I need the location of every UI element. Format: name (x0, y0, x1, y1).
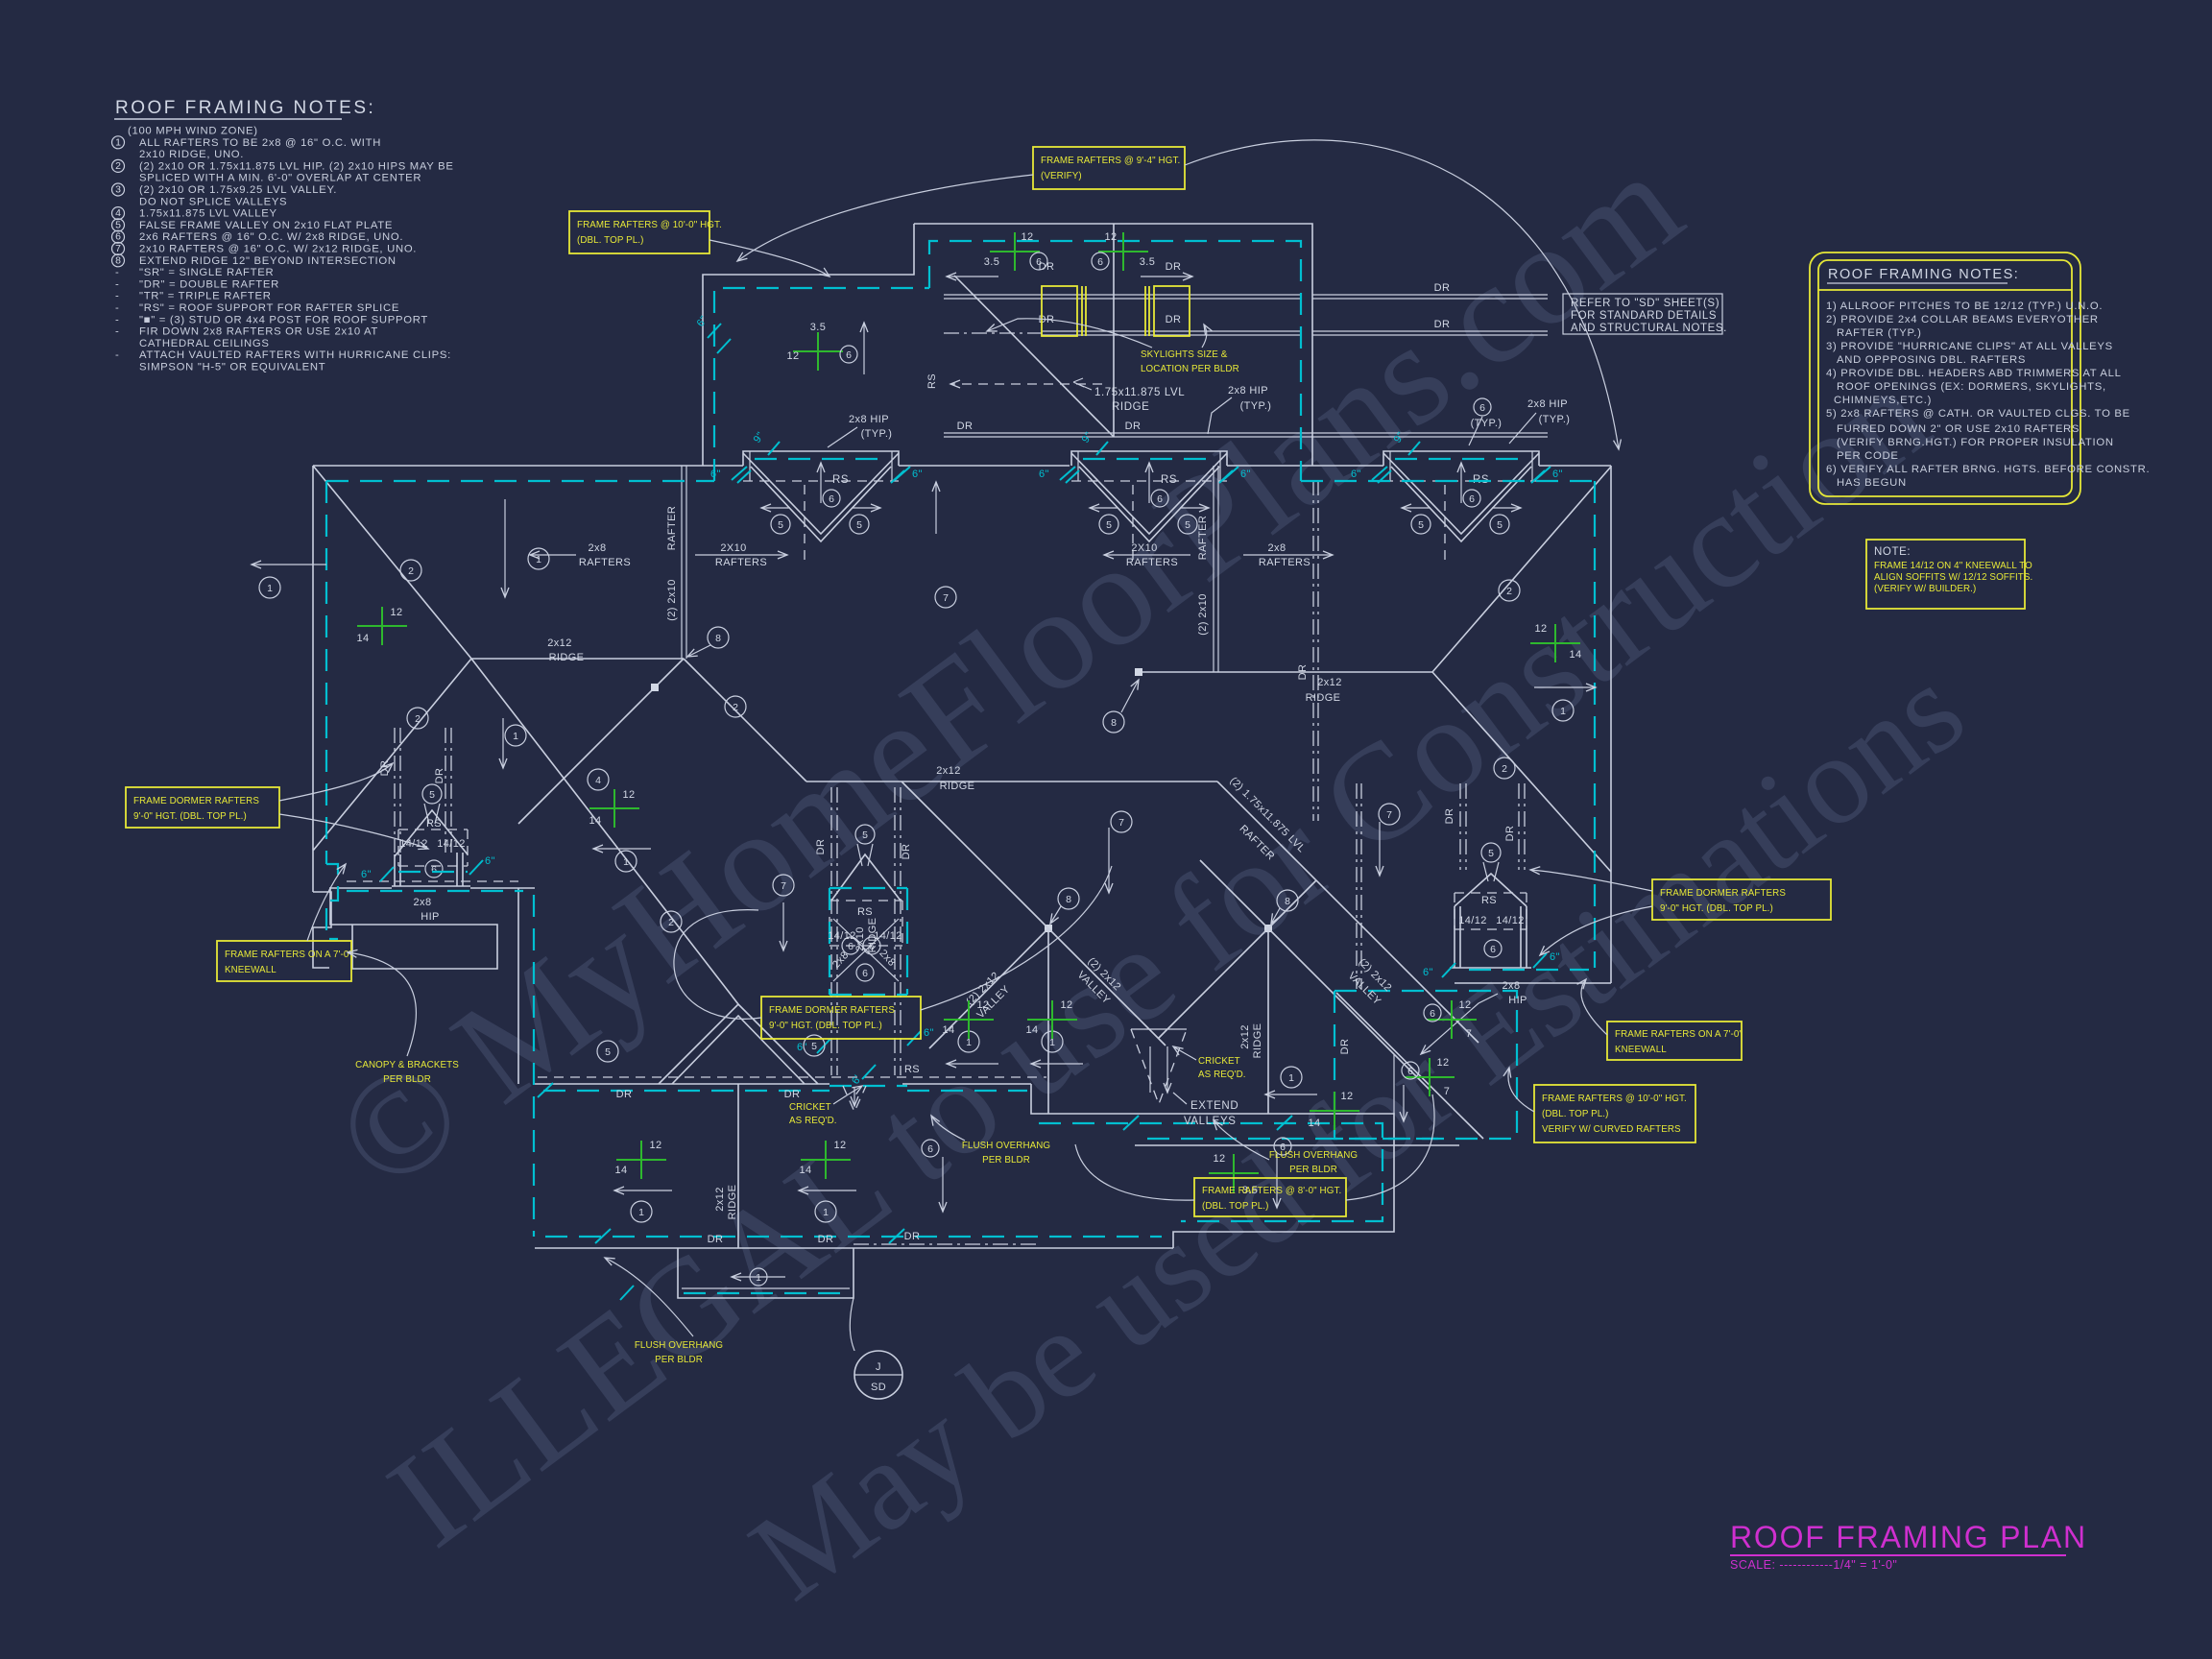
svg-text:(DBL. TOP PL.): (DBL. TOP PL.) (1202, 1201, 1268, 1212)
svg-text:REFER TO "SD" SHEET(S): REFER TO "SD" SHEET(S) (1571, 298, 1719, 309)
svg-text:7: 7 (781, 880, 786, 892)
svg-text:5) 2x8 RAFTERS @ CATH. OR VAUL: 5) 2x8 RAFTERS @ CATH. OR VAULTED CLGS. … (1826, 408, 2130, 420)
svg-text:RS: RS (1161, 474, 1177, 486)
svg-text:DR: DR (904, 1231, 921, 1242)
svg-text:8: 8 (715, 633, 721, 644)
svg-text:-: - (115, 314, 119, 325)
svg-text:"DR" = DOUBLE RAFTER: "DR" = DOUBLE RAFTER (139, 278, 279, 290)
svg-text:1: 1 (1560, 706, 1566, 717)
svg-text:(DBL. TOP PL.): (DBL. TOP PL.) (1542, 1109, 1608, 1119)
svg-text:FRAME RAFTERS @ 9'-4" HGT.: FRAME RAFTERS @ 9'-4" HGT. (1041, 156, 1180, 166)
svg-text:DR: DR (901, 844, 912, 860)
svg-text:AS REQ'D.: AS REQ'D. (1198, 1070, 1246, 1080)
svg-text:-: - (115, 302, 119, 314)
svg-text:2x10 RAFTERS @ 16" O.C. W/ 2x1: 2x10 RAFTERS @ 16" O.C. W/ 2x12 RIDGE, U… (139, 244, 417, 255)
svg-text:FALSE FRAME VALLEY ON 2x10 FLA: FALSE FRAME VALLEY ON 2x10 FLAT PLATE (139, 220, 393, 231)
svg-text:RIDGE: RIDGE (727, 1185, 738, 1220)
svg-text:5: 5 (1497, 519, 1503, 531)
svg-text:6": 6" (485, 855, 495, 867)
svg-text:3.5: 3.5 (1140, 256, 1156, 268)
svg-text:6: 6 (1469, 493, 1475, 505)
svg-text:2x8 HIP: 2x8 HIP (1527, 398, 1568, 410)
svg-text:SIMPSON "H-5" OR EQUIVALENT: SIMPSON "H-5" OR EQUIVALENT (139, 362, 325, 373)
svg-text:2) PROVIDE 2x4 COLLAR BEAMS EV: 2) PROVIDE 2x4 COLLAR BEAMS EVERYOTHER (1826, 314, 2099, 325)
svg-text:14: 14 (1025, 1024, 1038, 1036)
svg-text:ALL RAFTERS TO BE 2x8 @ 16" O.: ALL RAFTERS TO BE 2x8 @ 16" O.C. WITH (139, 137, 381, 149)
svg-text:2x6 RAFTERS @ 16" O.C. W/ 2x8: 2x6 RAFTERS @ 16" O.C. W/ 2x8 RIDGE, UNO… (139, 231, 403, 243)
svg-text:FRAME DORMER RAFTERS: FRAME DORMER RAFTERS (133, 796, 259, 806)
svg-text:2: 2 (408, 565, 414, 577)
svg-text:14/12: 14/12 (1496, 915, 1525, 926)
svg-text:2x8: 2x8 (1268, 542, 1286, 554)
svg-text:12: 12 (1436, 1057, 1449, 1069)
svg-text:FRAME RAFTERS ON A 7'-0": FRAME RAFTERS ON A 7'-0" (225, 950, 352, 960)
svg-text:DR: DR (1434, 319, 1451, 330)
svg-text:(2) 2x10 OR 1.75x9.25 LVL VALL: (2) 2x10 OR 1.75x9.25 LVL VALLEY. (139, 184, 337, 196)
svg-text:6": 6" (912, 469, 923, 480)
svg-text:6": 6" (695, 314, 710, 329)
svg-text:3: 3 (115, 184, 121, 196)
svg-text:12: 12 (1060, 999, 1072, 1011)
svg-text:"TR" = TRIPLE RAFTER: "TR" = TRIPLE RAFTER (139, 291, 272, 302)
svg-text:AS REQ'D.: AS REQ'D. (789, 1116, 837, 1126)
svg-text:DR: DR (1339, 1039, 1351, 1055)
svg-text:NOTE:: NOTE: (1874, 546, 1911, 558)
svg-text:1: 1 (536, 554, 541, 565)
svg-text:2x12: 2x12 (936, 765, 960, 777)
svg-text:6: 6 (862, 968, 868, 979)
svg-text:SD: SD (871, 1382, 886, 1393)
svg-text:DR: DR (1297, 664, 1309, 681)
svg-text:SPLICED WITH A MIN. 6'-0" OVER: SPLICED WITH A MIN. 6'-0" OVERLAP AT CEN… (139, 173, 421, 184)
svg-text:6": 6" (924, 1027, 934, 1039)
svg-text:6: 6 (829, 493, 834, 505)
svg-text:2x12: 2x12 (1239, 1024, 1251, 1048)
svg-text:(2) 2x10: (2) 2x10 (666, 579, 678, 621)
svg-text:14: 14 (942, 1024, 954, 1036)
svg-text:SCALE: ------------1/4" = 1'-0: SCALE: ------------1/4" = 1'-0" (1730, 1558, 1897, 1572)
svg-text:6: 6 (848, 941, 854, 952)
svg-text:HIP: HIP (421, 911, 440, 923)
svg-text:FRAME RAFTERS ON A 7'-0": FRAME RAFTERS ON A 7'-0" (1615, 1029, 1743, 1040)
svg-text:DR: DR (1504, 826, 1516, 842)
svg-text:9'-0" HGT. (DBL. TOP PL.): 9'-0" HGT. (DBL. TOP PL.) (133, 811, 247, 822)
svg-text:6": 6" (710, 469, 721, 480)
svg-text:2: 2 (1502, 763, 1507, 775)
svg-text:5: 5 (605, 1046, 611, 1058)
svg-text:-: - (115, 267, 119, 278)
svg-text:6: 6 (1490, 944, 1496, 955)
svg-text:14/12: 14/12 (437, 838, 466, 850)
svg-text:6": 6" (1351, 469, 1361, 480)
svg-text:DR: DR (434, 768, 445, 784)
svg-text:7: 7 (115, 243, 121, 254)
svg-text:6: 6 (846, 349, 852, 361)
svg-text:8: 8 (1111, 717, 1117, 729)
svg-text:2x10: 2x10 (854, 926, 866, 950)
svg-text:6: 6 (1097, 256, 1103, 268)
svg-text:1: 1 (823, 1207, 829, 1218)
svg-text:2x8: 2x8 (1503, 980, 1521, 992)
svg-text:6": 6" (361, 869, 372, 880)
svg-text:HAS BEGUN: HAS BEGUN (1837, 477, 1907, 489)
svg-text:(TYP.): (TYP.) (861, 428, 893, 440)
svg-text:3.5: 3.5 (810, 322, 827, 333)
svg-text:9": 9" (1080, 430, 1095, 445)
svg-text:-: - (115, 278, 119, 290)
svg-text:2X10: 2X10 (1131, 542, 1157, 554)
svg-text:12: 12 (833, 1140, 846, 1151)
svg-text:RIDGE: RIDGE (549, 652, 585, 663)
svg-text:1: 1 (513, 731, 518, 742)
svg-text:3) PROVIDE "HURRICANE CLIPS" A: 3) PROVIDE "HURRICANE CLIPS" AT ALL VALL… (1826, 341, 2113, 352)
svg-text:6) VERIFY ALL RAFTER BRNG. HGT: 6) VERIFY ALL RAFTER BRNG. HGTS. BEFORE … (1826, 464, 2150, 475)
svg-text:FRAME RAFTERS @ 10'-0" HGT.: FRAME RAFTERS @ 10'-0" HGT. (577, 220, 722, 230)
svg-text:FRAME 14/12 ON 4" KNEEWALL TO: FRAME 14/12 ON 4" KNEEWALL TO (1874, 561, 2032, 571)
svg-text:AND OPPPOSING DBL. RAFTERS: AND OPPPOSING DBL. RAFTERS (1837, 354, 2026, 366)
svg-text:14/12: 14/12 (1458, 915, 1487, 926)
svg-text:ROOF FRAMING PLAN: ROOF FRAMING PLAN (1730, 1520, 2087, 1554)
svg-text:-: - (115, 291, 119, 302)
svg-text:4) PROVIDE DBL. HEADERS ABD TR: 4) PROVIDE DBL. HEADERS ABD TRIMMERS AT … (1826, 368, 2122, 379)
svg-text:7: 7 (1466, 1028, 1473, 1040)
svg-text:DR: DR (708, 1234, 724, 1245)
svg-text:5: 5 (811, 1041, 817, 1052)
svg-text:14: 14 (589, 815, 601, 827)
svg-text:KNEEWALL: KNEEWALL (225, 965, 276, 975)
svg-text:RAFTERS: RAFTERS (715, 557, 767, 568)
svg-text:(VERIFY W/ BUILDER.): (VERIFY W/ BUILDER.) (1874, 584, 1976, 594)
svg-text:RAFTER (TYP.): RAFTER (TYP.) (1837, 327, 1922, 339)
svg-text:2: 2 (415, 713, 421, 725)
svg-text:FLUSH OVERHANG: FLUSH OVERHANG (962, 1141, 1050, 1151)
svg-text:RAFTER: RAFTER (666, 506, 678, 550)
svg-text:12: 12 (622, 789, 635, 801)
svg-text:2x8: 2x8 (589, 542, 607, 554)
svg-text:1: 1 (638, 1207, 644, 1218)
svg-text:7: 7 (943, 592, 949, 604)
svg-text:-: - (115, 326, 119, 338)
svg-text:1: 1 (267, 583, 273, 594)
svg-text:RIDGE: RIDGE (1112, 401, 1149, 413)
svg-text:5: 5 (429, 789, 435, 801)
svg-text:J: J (876, 1361, 881, 1373)
svg-text:RS: RS (926, 373, 938, 389)
svg-text:CRICKET: CRICKET (1198, 1056, 1240, 1067)
svg-text:RIDGE: RIDGE (1252, 1023, 1263, 1059)
svg-text:6": 6" (1552, 469, 1563, 480)
svg-text:RS: RS (857, 906, 873, 918)
svg-text:FRAME RAFTERS @ 8'-0" HGT.: FRAME RAFTERS @ 8'-0" HGT. (1202, 1186, 1341, 1196)
svg-text:5: 5 (1488, 848, 1494, 859)
svg-text:14/12: 14/12 (828, 930, 856, 942)
svg-text:12: 12 (786, 350, 799, 362)
svg-text:VALLEYS: VALLEYS (1184, 1116, 1237, 1127)
svg-text:"■" = (3) STUD OR 4x4 POST: "■" = (3) STUD OR 4x4 POST FOR ROOF SUPP… (139, 314, 428, 325)
svg-text:RS: RS (832, 474, 849, 486)
svg-text:EXTEND RIDGE 12" BEYOND INTERS: EXTEND RIDGE 12" BEYOND INTERSECTION (139, 255, 397, 267)
svg-text:6: 6 (1407, 1066, 1413, 1077)
svg-text:12: 12 (1213, 1153, 1225, 1165)
svg-text:1.75x11.875 LVL: 1.75x11.875 LVL (1094, 387, 1185, 398)
svg-text:12: 12 (1458, 999, 1471, 1011)
svg-text:5: 5 (856, 519, 862, 531)
svg-text:FURRED DOWN 2" OR USE 2x10 RAF: FURRED DOWN 2" OR USE 2x10 RAFTERS (1837, 423, 2080, 435)
svg-text:ALIGN SOFFITS W/ 12/12 SOFFITS: ALIGN SOFFITS W/ 12/12 SOFFITS. (1874, 572, 2032, 583)
svg-text:PER CODE: PER CODE (1837, 450, 1899, 462)
svg-text:DR: DR (616, 1089, 633, 1100)
svg-text:2x12: 2x12 (547, 637, 571, 649)
svg-text:6": 6" (1240, 469, 1251, 480)
svg-text:RAFTERS: RAFTERS (579, 557, 631, 568)
svg-text:2: 2 (1506, 586, 1512, 597)
svg-text:12: 12 (390, 607, 402, 618)
svg-text:5: 5 (778, 519, 783, 531)
svg-text:6: 6 (1157, 493, 1163, 505)
svg-text:VERIFY W/ CURVED RAFTERS: VERIFY W/ CURVED RAFTERS (1542, 1124, 1681, 1135)
svg-text:SKYLIGHTS SIZE &: SKYLIGHTS SIZE & (1141, 349, 1228, 360)
svg-text:ROOF FRAMING NOTES:: ROOF FRAMING NOTES: (1828, 267, 2019, 282)
svg-text:LOCATION PER BLDR: LOCATION PER BLDR (1141, 364, 1239, 374)
svg-text:RAFTERS: RAFTERS (1259, 557, 1310, 568)
svg-text:12: 12 (1104, 231, 1117, 243)
svg-text:DR: DR (1166, 314, 1182, 325)
svg-text:CATHEDRAL CEILINGS: CATHEDRAL CEILINGS (139, 338, 270, 349)
svg-text:6: 6 (1430, 1008, 1435, 1020)
svg-text:14: 14 (1308, 1118, 1320, 1129)
svg-text:ATTACH VAULTED RAFTERS WITH HU: ATTACH VAULTED RAFTERS WITH HURRICANE CL… (139, 349, 451, 361)
svg-text:"RS" = ROOF SUPPORT FOR RAFT: "RS" = ROOF SUPPORT FOR RAFTER SPLICE (139, 302, 399, 314)
svg-text:1: 1 (623, 856, 629, 868)
svg-text:2: 2 (668, 917, 674, 928)
svg-text:9'-0" HGT. (DBL. TOP PL.): 9'-0" HGT. (DBL. TOP PL.) (769, 1021, 882, 1031)
svg-text:DR: DR (1125, 421, 1142, 432)
svg-text:PER BLDR: PER BLDR (982, 1155, 1030, 1166)
svg-text:DR: DR (815, 839, 827, 855)
svg-text:5: 5 (115, 219, 121, 230)
svg-text:DR: DR (1444, 808, 1455, 825)
svg-text:EXTEND: EXTEND (1190, 1100, 1238, 1112)
svg-text:DR: DR (1434, 282, 1451, 294)
svg-text:(VERIFY): (VERIFY) (1041, 171, 1082, 181)
svg-text:6: 6 (1479, 402, 1485, 414)
svg-text:(DBL. TOP PL.): (DBL. TOP PL.) (577, 235, 643, 246)
svg-text:HIP: HIP (1508, 995, 1527, 1006)
svg-text:FLUSH OVERHANG: FLUSH OVERHANG (635, 1340, 723, 1351)
svg-text:8: 8 (115, 254, 121, 266)
svg-text:DR: DR (818, 1234, 834, 1245)
svg-text:CANOPY & BRACKETS: CANOPY & BRACKETS (355, 1060, 459, 1070)
svg-text:"SR" = SINGLE RAFTER: "SR" = SINGLE RAFTER (139, 267, 274, 278)
svg-text:6: 6 (115, 231, 121, 243)
svg-text:FIR DOWN 2x8 RAFTERS OR USE 2x: FIR DOWN 2x8 RAFTERS OR USE 2x10 AT (139, 326, 378, 338)
svg-text:RS: RS (1481, 895, 1497, 906)
svg-text:6: 6 (1036, 256, 1042, 268)
svg-text:4: 4 (595, 775, 601, 786)
svg-text:RS: RS (426, 818, 442, 829)
svg-text:FRAME DORMER RAFTERS: FRAME DORMER RAFTERS (1660, 888, 1786, 899)
svg-text:RAFTERS: RAFTERS (1126, 557, 1178, 568)
svg-text:5: 5 (1418, 519, 1424, 531)
svg-text:6: 6 (431, 864, 437, 876)
svg-text:DR: DR (784, 1089, 801, 1100)
svg-text:12: 12 (649, 1140, 661, 1151)
svg-text:7: 7 (1386, 809, 1392, 821)
svg-text:2: 2 (115, 160, 121, 172)
svg-text:(2) 2x10: (2) 2x10 (1197, 593, 1209, 636)
svg-text:2x12: 2x12 (1317, 677, 1341, 688)
svg-text:1: 1 (115, 136, 121, 148)
svg-text:4: 4 (115, 207, 121, 219)
svg-text:12: 12 (1340, 1091, 1353, 1102)
svg-text:RS: RS (904, 1064, 920, 1075)
svg-text:2x10 RIDGE, UNO.: 2x10 RIDGE, UNO. (139, 149, 244, 160)
svg-text:2X10: 2X10 (720, 542, 746, 554)
svg-text:-: - (115, 349, 119, 361)
svg-text:6: 6 (927, 1143, 933, 1155)
svg-text:KNEEWALL: KNEEWALL (1615, 1045, 1667, 1055)
svg-text:14: 14 (356, 633, 369, 644)
svg-text:RIDGE: RIDGE (940, 781, 975, 792)
svg-text:1.75x11.875 LVL VALLEY: 1.75x11.875 LVL VALLEY (139, 208, 277, 220)
svg-text:8: 8 (1285, 896, 1290, 907)
svg-text:9": 9" (752, 430, 767, 445)
svg-text:2x12: 2x12 (714, 1187, 726, 1211)
svg-text:6": 6" (1550, 951, 1560, 963)
svg-text:FRAME RAFTERS @ 10'-0" HGT.: FRAME RAFTERS @ 10'-0" HGT. (1542, 1094, 1687, 1104)
svg-text:DR: DR (1166, 261, 1182, 273)
svg-text:14: 14 (799, 1165, 811, 1176)
svg-text:1: 1 (1288, 1072, 1294, 1084)
svg-text:PER BLDR: PER BLDR (1289, 1165, 1337, 1175)
svg-text:AND STRUCTURAL NOTES.: AND STRUCTURAL NOTES. (1571, 323, 1727, 334)
svg-text:5: 5 (1185, 519, 1190, 531)
svg-text:12: 12 (976, 999, 989, 1011)
svg-text:5: 5 (1106, 519, 1112, 531)
svg-text:RAFTER: RAFTER (1197, 516, 1209, 560)
svg-text:RIDGE: RIDGE (1306, 692, 1341, 704)
svg-text:DO NOT SPLICE VALLEYS: DO NOT SPLICE VALLEYS (139, 196, 287, 207)
svg-text:6": 6" (1423, 967, 1433, 978)
svg-text:(TYP.): (TYP.) (1471, 418, 1503, 429)
svg-text:2x8: 2x8 (414, 897, 432, 908)
svg-text:PER BLDR: PER BLDR (383, 1074, 431, 1085)
svg-text:(2) 2x10 OR 1.75x11.875 LVL HI: (2) 2x10 OR 1.75x11.875 LVL HIP. (2) 2x1… (139, 160, 454, 172)
svg-text:14/12: 14/12 (874, 930, 902, 942)
svg-text:DR: DR (957, 421, 974, 432)
svg-text:(TYP.): (TYP.) (1539, 414, 1571, 425)
svg-text:FRAME DORMER RAFTERS: FRAME DORMER RAFTERS (769, 1005, 895, 1016)
svg-text:(100 MPH WIND ZONE): (100 MPH WIND ZONE) (128, 126, 258, 137)
svg-text:3.5: 3.5 (984, 256, 1000, 268)
svg-text:2x8 HIP: 2x8 HIP (1228, 385, 1268, 397)
svg-text:14: 14 (1569, 649, 1581, 661)
svg-text:PER BLDR: PER BLDR (655, 1355, 703, 1365)
svg-text:7: 7 (1444, 1086, 1451, 1097)
svg-text:12: 12 (1534, 623, 1547, 635)
svg-text:14: 14 (614, 1165, 627, 1176)
svg-text:ROOF OPENINGS (EX: DORMERS, SK: ROOF OPENINGS (EX: DORMERS, SKYLIGHTS, (1837, 381, 2106, 393)
svg-text:ROOF FRAMING NOTES:: ROOF FRAMING NOTES: (115, 98, 375, 118)
svg-text:DR: DR (379, 760, 391, 777)
svg-text:1) ALLROOF PITCHES TO BE 12/1: 1) ALLROOF PITCHES TO BE 12/12 (TYP.) U.… (1826, 301, 2103, 312)
svg-text:5: 5 (862, 829, 868, 841)
svg-text:6": 6" (1039, 469, 1049, 480)
svg-text:(TYP.): (TYP.) (1240, 400, 1272, 412)
svg-text:CRICKET: CRICKET (789, 1102, 831, 1113)
svg-text:FLUSH OVERHANG: FLUSH OVERHANG (1269, 1150, 1358, 1161)
svg-text:FOR STANDARD DETAILS: FOR STANDARD DETAILS (1571, 310, 1717, 322)
svg-text:2: 2 (733, 702, 738, 713)
svg-text:9'-0" HGT. (DBL. TOP PL.): 9'-0" HGT. (DBL. TOP PL.) (1660, 903, 1773, 914)
svg-text:1: 1 (756, 1272, 761, 1284)
svg-text:CHIMNEYS,ETC.): CHIMNEYS,ETC.) (1834, 395, 1932, 406)
svg-text:7: 7 (1118, 817, 1124, 829)
svg-text:(VERIFY BRNG.HGT.) FOR PROPER: (VERIFY BRNG.HGT.) FOR PROPER INSULATION (1837, 437, 2114, 448)
svg-text:12: 12 (1021, 231, 1033, 243)
svg-text:2x8 HIP: 2x8 HIP (849, 414, 889, 425)
svg-text:8: 8 (1066, 894, 1071, 905)
